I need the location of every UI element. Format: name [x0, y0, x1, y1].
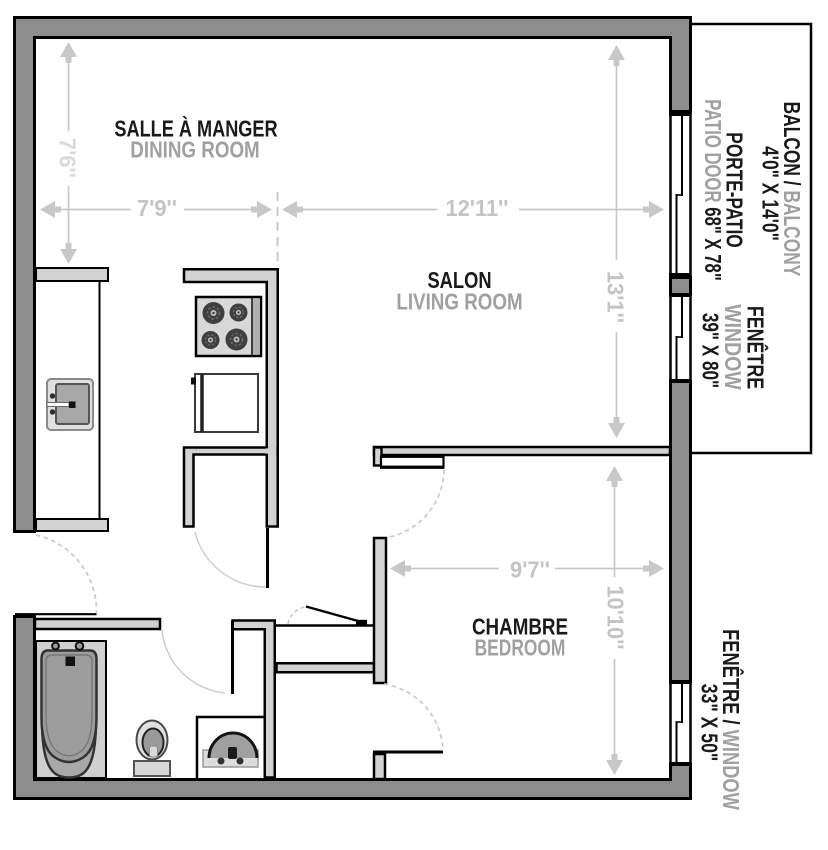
svg-text:10'10'': 10'10''	[603, 585, 630, 649]
svg-text:4'0" X 14'0": 4'0" X 14'0"	[757, 146, 783, 241]
svg-text:DINING ROOM: DINING ROOM	[130, 137, 259, 164]
svg-text:13'1'': 13'1''	[603, 271, 630, 323]
svg-text:39" X 80": 39" X 80"	[697, 313, 723, 388]
svg-text:BEDROOM: BEDROOM	[475, 635, 566, 661]
svg-text:12'11'': 12'11''	[446, 194, 509, 221]
svg-text:7'6'': 7'6''	[55, 138, 82, 178]
svg-text:PATIO DOOR 68" X 78": PATIO DOOR 68" X 78"	[699, 99, 724, 280]
svg-text:33" X 50": 33" X 50"	[696, 684, 722, 761]
svg-text:9'7'': 9'7''	[510, 556, 550, 583]
svg-text:7'9'': 7'9''	[137, 194, 177, 221]
svg-text:LIVING ROOM: LIVING ROOM	[396, 289, 522, 316]
